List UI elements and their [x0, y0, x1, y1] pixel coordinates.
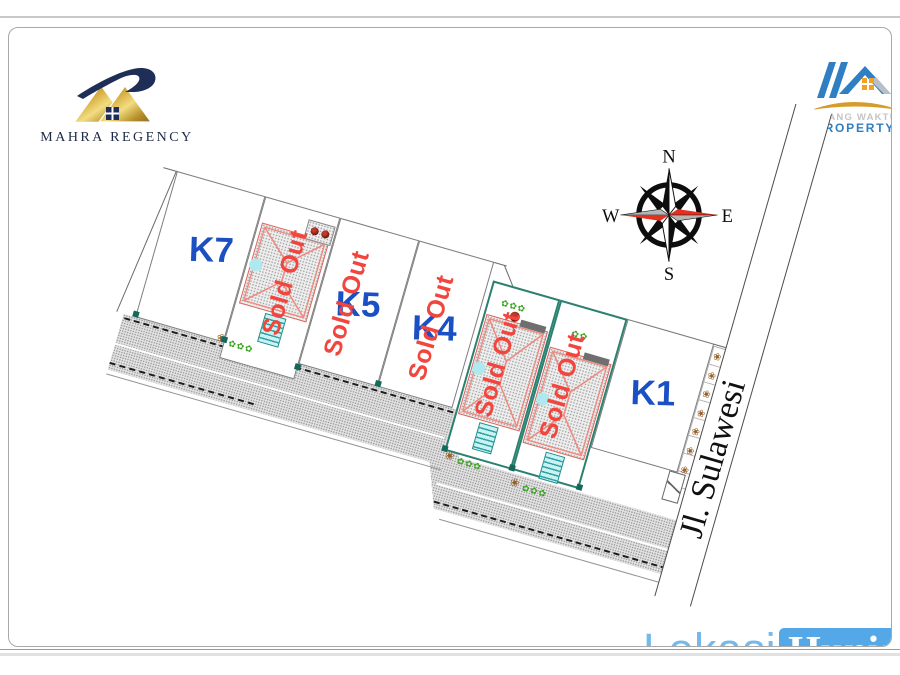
plan-frame: MAHRA REGENCY RUANG WAKTU PROPERTY: [8, 27, 892, 647]
developer-logo-text: MAHRA REGENCY: [40, 130, 193, 145]
road-dashed-edge: [434, 501, 667, 570]
top-divider: [0, 16, 900, 18]
bottom-divider: [0, 649, 900, 650]
developer-logo: MAHRA REGENCY: [27, 64, 207, 150]
compass-label-s: S: [664, 264, 674, 284]
compass-needle-east: [669, 209, 718, 221]
plot-label-k1: K1: [617, 373, 688, 415]
plot-label-k7: K7: [176, 229, 247, 271]
compass-label-w: W: [602, 206, 620, 226]
agency-logo-icon: [811, 62, 892, 110]
compass-needle-west: [620, 209, 669, 221]
footer-brand: LokasiHunian: [643, 624, 892, 647]
footer-brand-word1: Lokasi: [643, 624, 776, 647]
compass-label-n: N: [662, 147, 675, 167]
developer-logo-icon: [75, 68, 155, 122]
compass-rose: N E S W: [601, 144, 737, 286]
footer-brand-word2: Hunian: [779, 628, 892, 647]
survey-marker: [576, 483, 583, 490]
compass-needle-south: [662, 215, 676, 262]
road-dashed-edge: [109, 362, 254, 405]
road-lane-line: [437, 483, 672, 552]
compass-needle-north: [662, 168, 676, 215]
flyer-page: MAHRA REGENCY RUANG WAKTU PROPERTY: [0, 0, 900, 675]
planter-icon: [320, 229, 330, 239]
bottom-divider-light: [0, 653, 900, 656]
compass-label-e: E: [722, 206, 733, 226]
